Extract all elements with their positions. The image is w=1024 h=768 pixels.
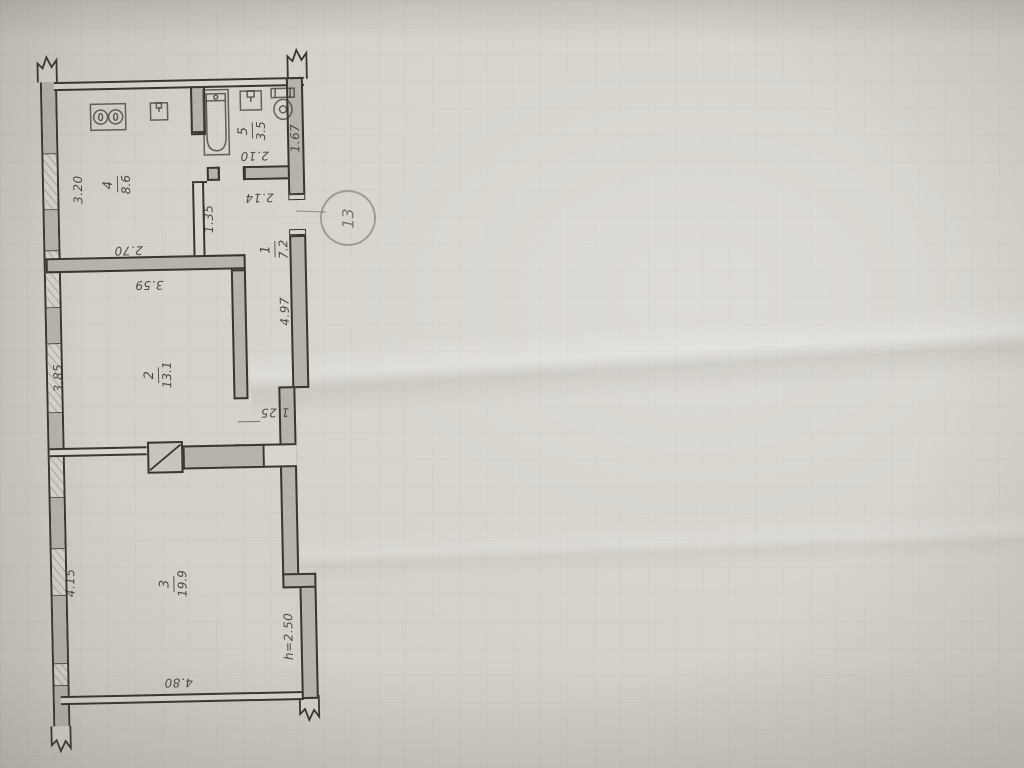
sink-icon	[149, 102, 168, 121]
door-leaf	[238, 421, 260, 422]
bottom-exterior-wall	[61, 691, 304, 705]
room-area: 8.6	[119, 175, 133, 194]
entrance-door-opening	[290, 200, 304, 229]
room2-room3-wall	[50, 446, 147, 457]
room-number: 3	[157, 580, 172, 589]
top-exterior-wall	[54, 77, 304, 91]
floor-plan: 4 8.6 5 3.5 1 7.2 2 13.1 3 19.9 3.20 2.7…	[29, 52, 344, 764]
room-label-5: 5 3.5	[236, 121, 268, 141]
room-number: 2	[142, 371, 157, 380]
window-opening	[50, 453, 64, 498]
room-number: 5	[236, 127, 251, 136]
stove-icon	[89, 103, 127, 132]
toilet-icon	[270, 87, 296, 123]
room-label-2: 2 13.1	[142, 361, 175, 388]
left-exterior-wall	[40, 78, 71, 730]
room2-hall-wall	[231, 269, 249, 399]
dimension-label: 3.20	[71, 175, 86, 204]
wall-pier	[45, 210, 59, 250]
wall-break-icon	[281, 47, 312, 80]
dimension-label: 2.14	[245, 191, 274, 206]
dimension-label: 4.97	[277, 297, 292, 326]
window-opening	[54, 663, 67, 686]
wall-pier	[51, 498, 65, 548]
washbasin-icon	[239, 90, 262, 111]
wall-break-icon	[45, 726, 76, 755]
paper-crease	[299, 507, 1024, 583]
room-number: 1	[258, 245, 273, 254]
floor-plan-photo: 4 8.6 5 3.5 1 7.2 2 13.1 3 19.9 3.20 2.7…	[0, 0, 1024, 768]
paper-crease	[249, 301, 1024, 420]
dimension-label: 4.15	[63, 568, 78, 597]
room3-door-opening	[264, 443, 296, 468]
right-exterior-wall	[299, 586, 318, 699]
window-opening	[43, 153, 57, 210]
room2-room3-wall	[183, 444, 265, 470]
dimension-label: 3.85	[51, 364, 66, 393]
dimension-label: 2.70	[114, 243, 143, 258]
room-label-1: 1 7.2	[258, 240, 290, 260]
vent-shaft-icon	[146, 440, 184, 474]
dimension-label: 1.35	[201, 204, 216, 233]
room-area: 3.5	[254, 121, 268, 140]
wall-pier	[47, 308, 61, 343]
apartment-number: 13	[338, 208, 357, 228]
room-label-3: 3 19.9	[157, 570, 190, 597]
ceiling-height-label: h=2.50	[281, 612, 296, 660]
dimension-label: 4.80	[164, 675, 193, 690]
dimension-label: 3.59	[135, 278, 164, 293]
dimension-label: 2.10	[240, 149, 269, 164]
wall-pier	[55, 686, 69, 730]
room-area: 7.2	[276, 240, 290, 259]
bath-wall	[244, 165, 290, 180]
dimension-label: 1.25	[260, 405, 289, 420]
room-area: 19.9	[175, 570, 190, 597]
dimension-label: 1.67	[288, 124, 303, 153]
kitchen-room2-wall	[46, 254, 246, 273]
room-area: 13.1	[160, 361, 175, 388]
bathtub-icon	[202, 88, 230, 156]
room-label-4: 4 8.6	[101, 175, 133, 195]
wall-break-icon	[31, 54, 62, 83]
door-jamb-tick	[243, 166, 245, 180]
wall-pier	[53, 596, 67, 663]
right-exterior-wall	[289, 235, 309, 388]
door-jamb-tick	[218, 167, 220, 181]
room-number: 4	[101, 181, 116, 190]
